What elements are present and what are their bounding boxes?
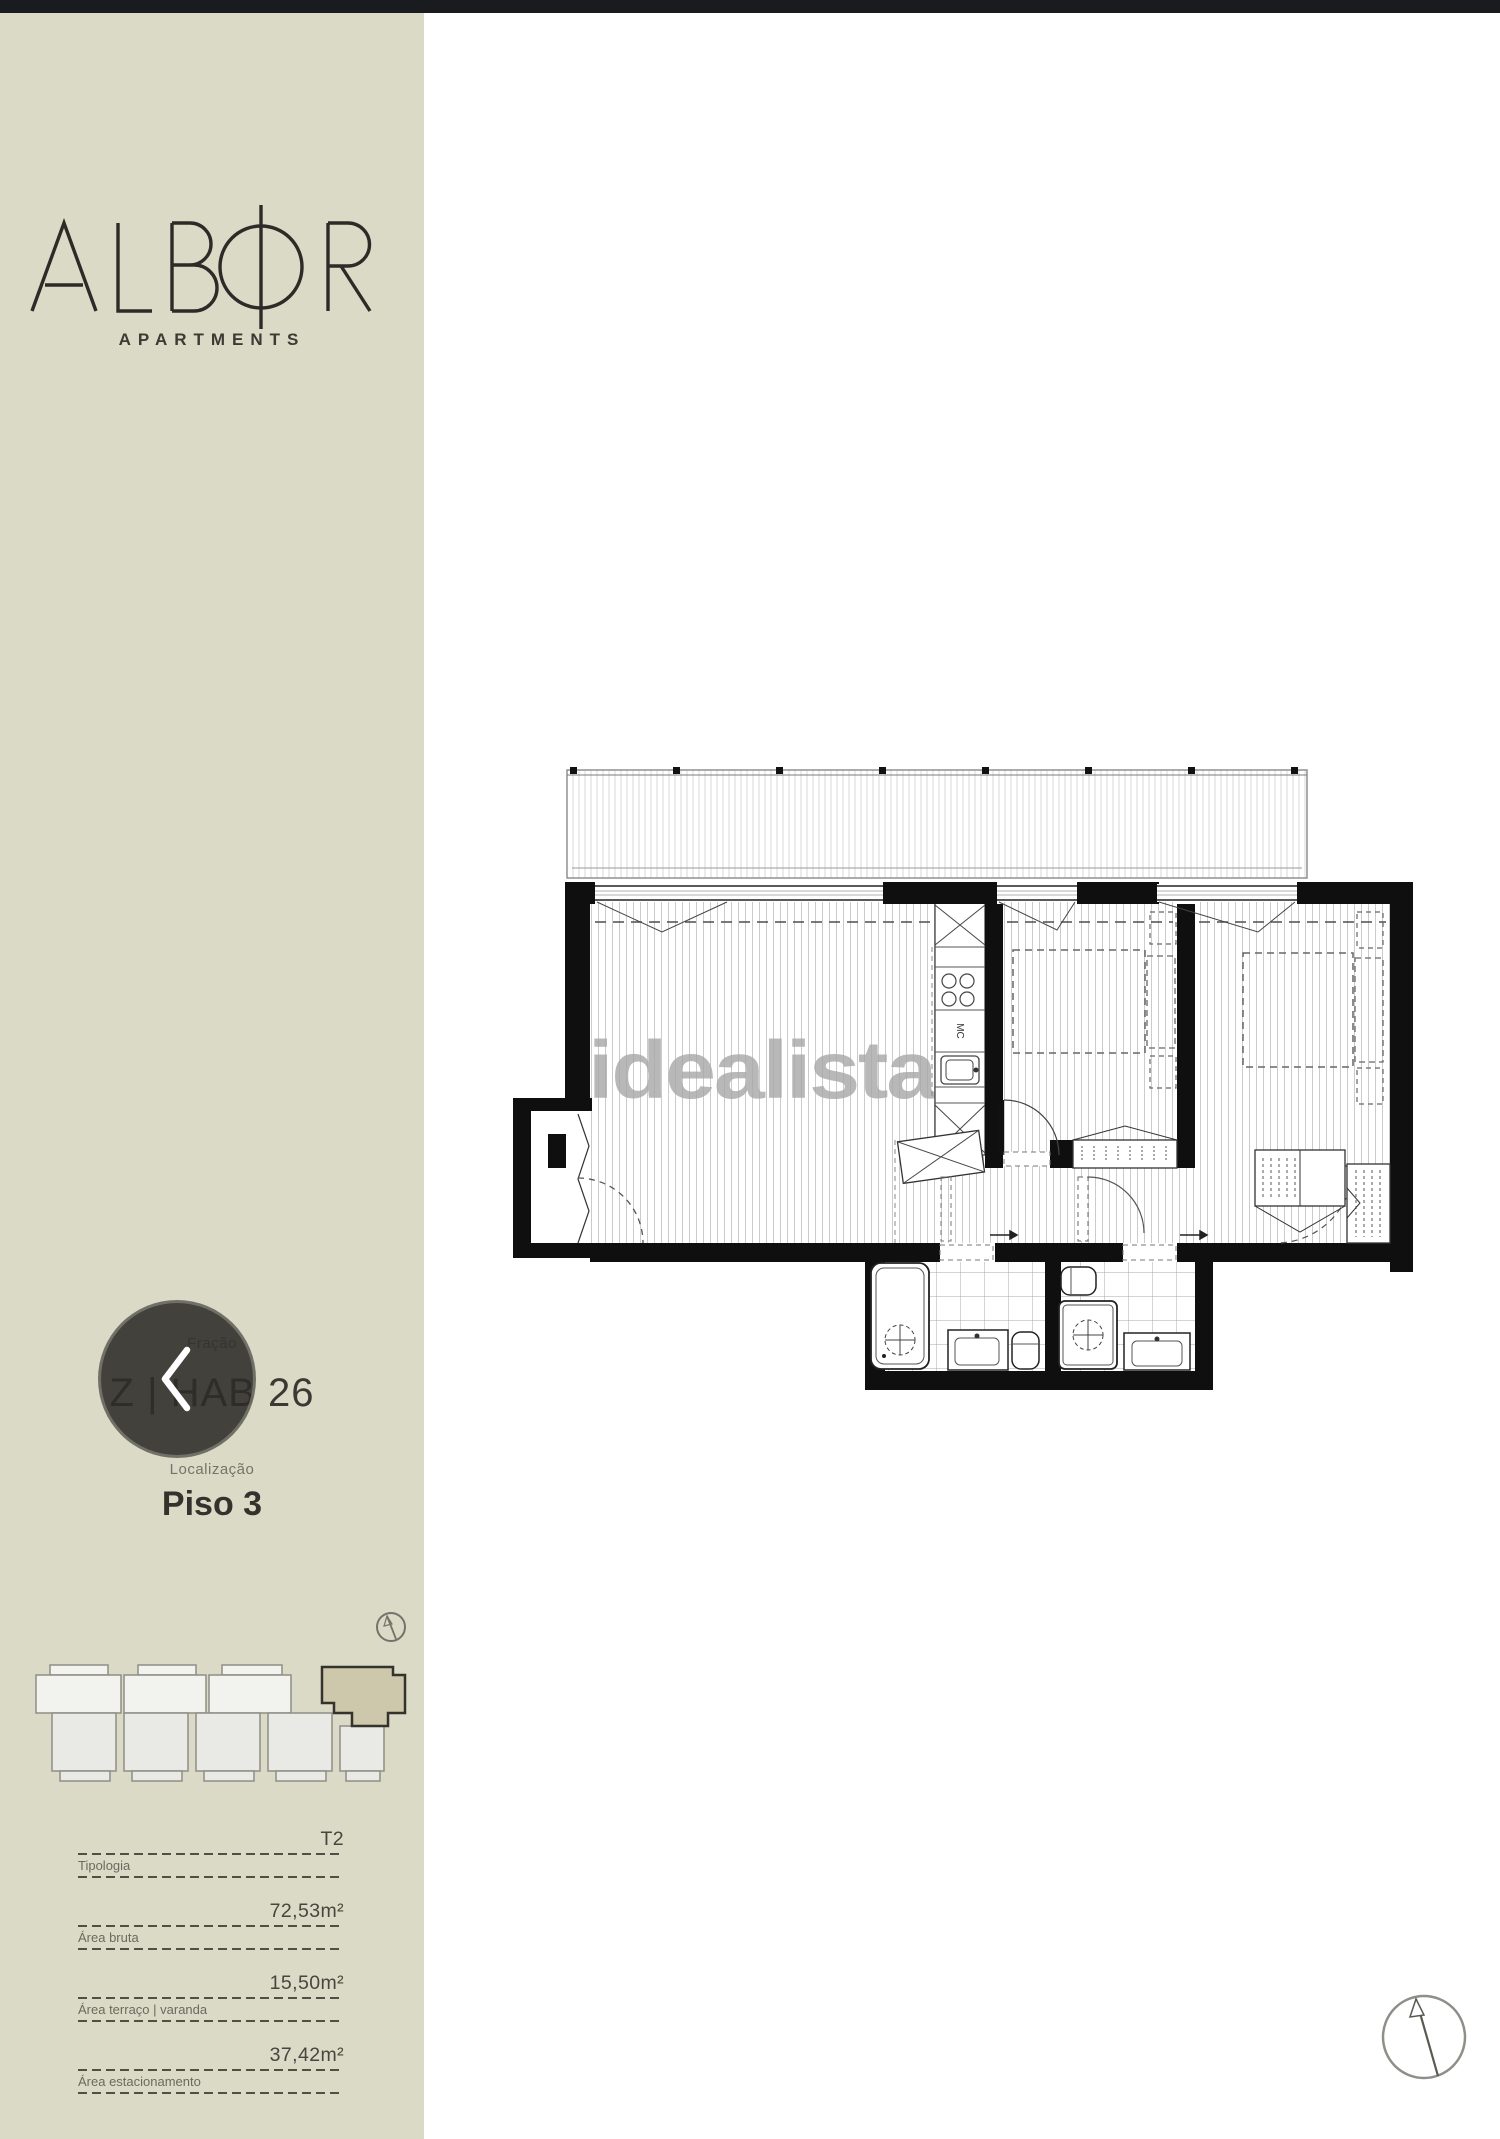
- status-bar: [0, 0, 1500, 13]
- divider: [78, 1876, 344, 1878]
- floor-plan: idealista MC: [505, 762, 1420, 1407]
- spec-value: T2: [78, 1828, 344, 1853]
- spec-label: Tipologia: [78, 1855, 344, 1875]
- divider: [78, 1948, 344, 1950]
- divider: [78, 2092, 344, 2094]
- vanity-sink: [948, 1330, 1008, 1370]
- toilet: [1012, 1332, 1039, 1369]
- north-compass-icon: [1372, 1986, 1476, 2090]
- spec-row: 72,53m² Área bruta: [78, 1900, 344, 1964]
- microwave-label: MC: [954, 1023, 965, 1039]
- compass-icon: [377, 1613, 405, 1641]
- spec-label: Área estacionamento: [78, 2071, 344, 2091]
- bathroom-1: [871, 1262, 1045, 1371]
- toilet: [1061, 1267, 1096, 1295]
- spec-label: Área terraço | varanda: [78, 1999, 344, 2019]
- spec-value: 37,42m²: [78, 2044, 344, 2069]
- balcony: [567, 767, 1307, 878]
- bedroom-2-wardrobe: [1347, 1164, 1390, 1243]
- spec-row: T2 Tipologia: [78, 1828, 344, 1892]
- spec-label: Área bruta: [78, 1927, 344, 1947]
- bathroom-2: [1059, 1262, 1195, 1371]
- building-keyplan: [0, 13, 424, 1813]
- spec-value: 72,53m²: [78, 1900, 344, 1925]
- shower: [1059, 1301, 1117, 1369]
- spec-row: 15,50m² Área terraço | varanda: [78, 1972, 344, 2036]
- highlighted-unit: [322, 1667, 405, 1726]
- divider: [78, 2020, 344, 2022]
- door-mat: [548, 1134, 566, 1168]
- bathtub: [871, 1263, 929, 1369]
- watermark: idealista: [588, 1025, 939, 1116]
- vanity-sink: [1124, 1333, 1190, 1370]
- spec-row: 37,42m² Área estacionamento: [78, 2044, 344, 2108]
- screen: APARTMENTS Fração Z | HAB 26 Localização…: [0, 0, 1500, 2139]
- spec-value: 15,50m²: [78, 1972, 344, 1997]
- sidebar: APARTMENTS Fração Z | HAB 26 Localização…: [0, 13, 424, 2139]
